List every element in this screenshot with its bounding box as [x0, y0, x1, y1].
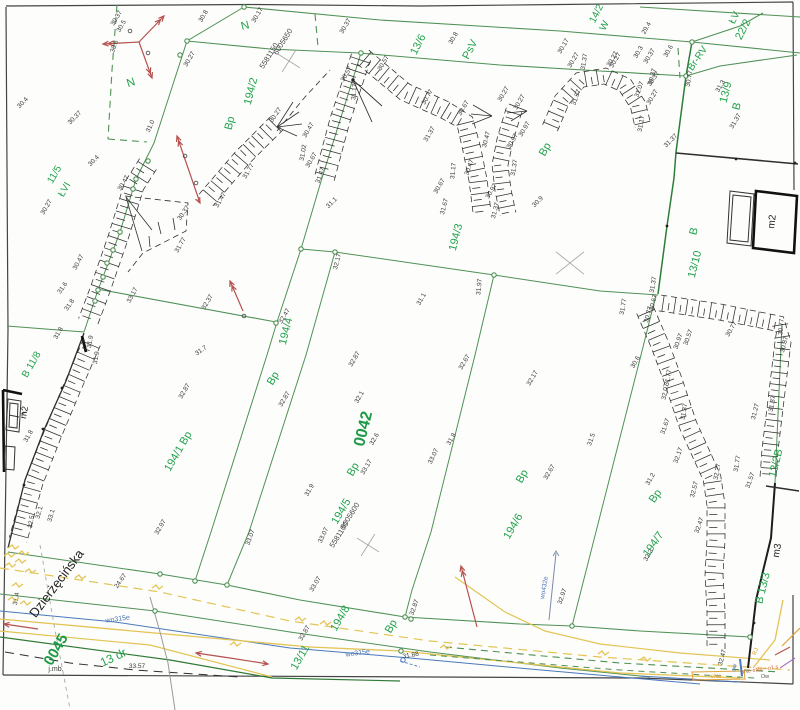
svg-text:Ow: Ow — [761, 674, 769, 680]
svg-text:31.17: 31.17 — [350, 83, 358, 100]
svg-text:eNe: eNe — [710, 674, 722, 680]
svg-text:m2: m2 — [766, 214, 779, 230]
svg-text:31.97: 31.97 — [475, 278, 483, 295]
svg-text:j.mb.: j.mb. — [47, 666, 63, 673]
svg-text:m2: m2 — [18, 405, 30, 419]
svg-text:31.17: 31.17 — [449, 162, 457, 179]
svg-text:33.57: 33.57 — [129, 663, 146, 670]
svg-text:30.77: 30.77 — [777, 318, 785, 335]
